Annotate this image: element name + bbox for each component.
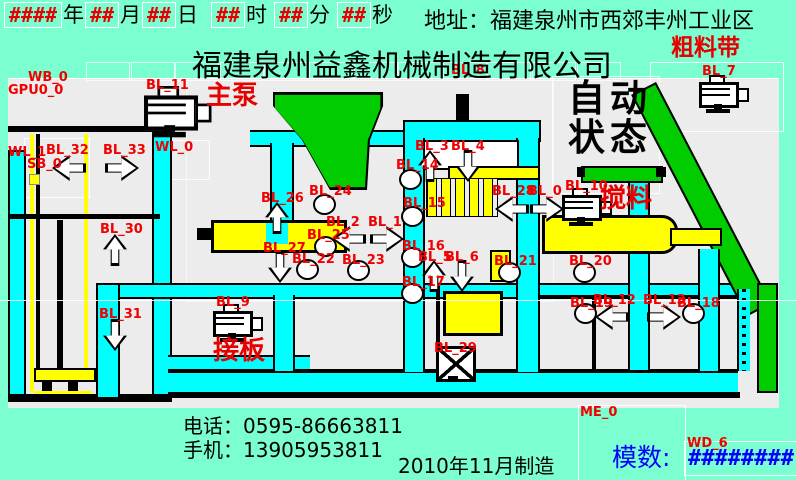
- datetime-unit: 年: [62, 3, 85, 27]
- elevator-mid-bar: [8, 214, 160, 219]
- datetime-unit: 秒: [371, 3, 394, 27]
- company-title: 福建泉州益鑫机械制造有限公司: [192, 41, 612, 85]
- tag-BL_22: BL_22: [292, 253, 335, 266]
- elevator-post-2: [57, 220, 63, 372]
- datetime-field-时: ##: [211, 2, 245, 28]
- annotation-2: 粗料带: [671, 36, 740, 60]
- tag-BL_26: BL_26: [261, 192, 304, 205]
- hmi-screen: ####年##月##日##时##分##秒 地址：福建泉州市西郊丰州工业区 福建泉…: [0, 0, 796, 480]
- conveyor-cap-left: [577, 167, 585, 177]
- datetime-unit: 时: [245, 3, 268, 27]
- manufacture-date: 2010年11月制造: [398, 450, 554, 479]
- annotation-3: 搅料: [600, 186, 652, 213]
- hotspot-button-1[interactable]: [86, 62, 130, 81]
- annotation-4: 接板: [213, 338, 265, 365]
- tag-BL_6: BL_6: [445, 251, 479, 264]
- tag-BL_18: BL_18: [677, 297, 720, 310]
- tag-BL_30: BL_30: [100, 223, 143, 236]
- SB_0-square-icon: [29, 174, 40, 185]
- elevator-rail-left: [8, 150, 26, 401]
- module-count-label: 模数:: [612, 438, 670, 474]
- tag-BL_24: BL_24: [309, 185, 352, 198]
- datetime-unit: 日: [176, 3, 199, 27]
- tag-BL_32: BL_32: [46, 144, 89, 157]
- mould-block: [443, 291, 503, 336]
- module-count-value[interactable]: ########: [688, 446, 794, 471]
- annotation-1: 主泵: [206, 83, 258, 110]
- dotted-strip: [737, 289, 750, 371]
- datetime-field-秒: ##: [337, 2, 371, 28]
- tag-BL_14: BL_14: [396, 159, 439, 172]
- tag-WL_0: WL_0: [155, 141, 193, 154]
- tag-BL_1: BL_1: [368, 216, 402, 229]
- press-top-post: [456, 94, 469, 122]
- tag-BL_29: BL_29: [434, 342, 477, 355]
- tag-GPU0_0: GPU0_0: [8, 84, 63, 97]
- tag-BL_25: BL_25: [307, 229, 350, 242]
- hopper: [249, 90, 391, 192]
- tag-BL_12: BL_12: [593, 294, 636, 307]
- tag-ME_0: ME_0: [580, 406, 617, 419]
- mixer-shaft: [670, 228, 722, 246]
- company-address: 地址：福建泉州市西郊丰州工业区: [424, 3, 754, 35]
- BL_7-motor-icon: [699, 75, 743, 115]
- column-2: [273, 295, 295, 371]
- datetime-field-分: ##: [274, 2, 308, 28]
- mode-status-text[interactable]: 自动 状态: [560, 79, 660, 157]
- mobile-label: 手机：: [183, 438, 243, 462]
- tag-BL_3: BL_3: [415, 140, 449, 153]
- tag-SB_0: SB_0: [27, 158, 62, 171]
- tag-BL_11: BL_11: [146, 79, 189, 92]
- datetime-field-月: ##: [85, 2, 119, 28]
- tag-BL_9: BL_9: [216, 296, 250, 309]
- mobile-number: 13905953811: [243, 438, 383, 462]
- tag-BL_20: BL_20: [569, 255, 612, 268]
- mode-line-2: 状态: [560, 118, 660, 157]
- tag-BL_31: BL_31: [99, 308, 142, 321]
- BL_11-pump-icon: [144, 86, 203, 140]
- datetime-field-年: ####: [4, 2, 62, 28]
- tag-BL_4: BL_4: [451, 140, 485, 153]
- datetime-display: ####年##月##日##时##分##秒: [4, 2, 394, 28]
- elevator-yellow-guide-1: [30, 134, 34, 392]
- tag-BL_7: BL_7: [702, 65, 736, 78]
- tag-BL_21: BL_21: [494, 255, 537, 268]
- BL_29-valve-base: [448, 376, 458, 381]
- datetime-field-日: ##: [142, 2, 176, 28]
- tag-BL_0: BL_0: [528, 185, 562, 198]
- tag-BL_33: BL_33: [103, 144, 146, 157]
- mobile-line: 手机：13905953811: [183, 434, 383, 463]
- tag-WB_0: WB_0: [28, 71, 68, 84]
- tag-BL_15: BL_15: [403, 197, 446, 210]
- conveyor-cap-right: [656, 167, 666, 177]
- floor-bottom-line: [168, 392, 740, 398]
- datetime-unit: 分: [308, 3, 331, 27]
- elevator-bottom-bar: [8, 394, 172, 402]
- tag-BL_23: BL_23: [342, 254, 385, 267]
- tag-BL_17: BL_17: [402, 276, 445, 289]
- datetime-unit: 月: [119, 3, 142, 27]
